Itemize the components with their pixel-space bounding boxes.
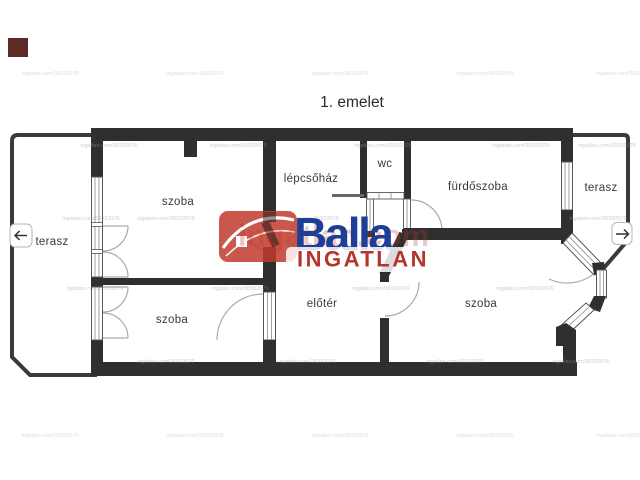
- svg-text:ingatlan.com/36932076: ingatlan.com/36932076: [311, 433, 368, 439]
- svg-text:terasz: terasz: [584, 182, 617, 194]
- svg-text:ingatlan.com/36932076: ingatlan.com/36932076: [596, 71, 640, 77]
- svg-text:ingatlan.com/36932076: ingatlan.com/36932076: [137, 216, 194, 222]
- svg-text:ingatlan.com/36932076: ingatlan.com/36932076: [578, 143, 635, 149]
- svg-text:ingatlan.com/36932076: ingatlan.com/36932076: [569, 216, 626, 222]
- svg-text:ingatlan.com/36932076: ingatlan.com/36932076: [352, 286, 409, 292]
- svg-text:ingatlan.com/36932076: ingatlan.com/36932076: [492, 143, 549, 149]
- svg-text:előtér: előtér: [307, 298, 338, 310]
- svg-text:ingatlan.com/36932076: ingatlan.com/36932076: [166, 433, 223, 439]
- svg-text:ingatlan.com/36932076: ingatlan.com/36932076: [66, 286, 123, 292]
- svg-text:wc: wc: [377, 158, 393, 170]
- svg-text:ingatlan.com/36932076: ingatlan.com/36932076: [456, 433, 513, 439]
- svg-text:1. emelet: 1. emelet: [320, 94, 384, 111]
- svg-text:ingatlan.com/36932076: ingatlan.com/36932076: [426, 359, 483, 365]
- svg-text:terasz: terasz: [35, 236, 68, 248]
- svg-text:ingatlan.com/36932076: ingatlan.com/36932076: [21, 71, 78, 77]
- svg-text:ingatlan.com/36932076: ingatlan.com/36932076: [80, 143, 137, 149]
- svg-text:ingatlan.com/36932076: ingatlan.com/36932076: [62, 216, 119, 222]
- svg-text:ingatlan.com/36932076: ingatlan.com/36932076: [552, 359, 609, 365]
- svg-text:ingatlan.com/36932076: ingatlan.com/36932076: [496, 286, 553, 292]
- svg-text:ingatlan.com/36932076: ingatlan.com/36932076: [137, 359, 194, 365]
- svg-text:fürdőszoba: fürdőszoba: [448, 181, 508, 193]
- svg-text:szoba: szoba: [156, 314, 188, 326]
- svg-text:ingatlan.com/36932076: ingatlan.com/36932076: [209, 143, 266, 149]
- svg-text:ingatlan.com/36932076: ingatlan.com/36932076: [166, 71, 223, 77]
- svg-text:lépcsőház: lépcsőház: [284, 173, 338, 185]
- svg-text:ingatlan.com/36932076: ingatlan.com/36932076: [456, 71, 513, 77]
- svg-text:ingatlan.com/36932076: ingatlan.com/36932076: [311, 71, 368, 77]
- svg-text:INGATLAN: INGATLAN: [297, 247, 429, 272]
- svg-text:ingatlan.com/36932076: ingatlan.com/36932076: [21, 433, 78, 439]
- svg-text:szoba: szoba: [465, 298, 497, 310]
- svg-text:szoba: szoba: [162, 196, 194, 208]
- svg-text:ingatlan.com/36932076: ingatlan.com/36932076: [211, 286, 268, 292]
- svg-text:ingatlan.com/36932076: ingatlan.com/36932076: [278, 359, 335, 365]
- svg-text:ingatlan.com/36932076: ingatlan.com/36932076: [596, 433, 640, 439]
- svg-text:ingatlan.com/36932076: ingatlan.com/36932076: [354, 143, 411, 149]
